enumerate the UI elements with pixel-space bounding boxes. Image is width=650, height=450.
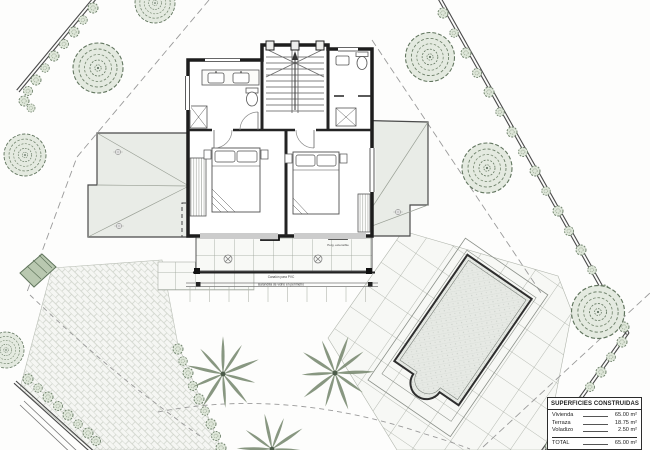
gutter-label: Canalón para PVC xyxy=(268,275,295,279)
leader-line xyxy=(583,444,608,445)
tree-icon xyxy=(572,286,625,339)
toilet xyxy=(357,57,367,70)
row-value: 2.50 m² xyxy=(611,427,637,435)
tree-icon xyxy=(4,134,46,176)
table-divider xyxy=(552,437,637,438)
nightstand xyxy=(285,154,292,163)
leader-line xyxy=(583,416,608,417)
sink xyxy=(233,73,249,83)
pillow xyxy=(237,151,257,162)
wardrobe xyxy=(190,158,206,216)
pillow xyxy=(317,155,336,166)
palm-tree-icon xyxy=(231,407,313,450)
tree-icon xyxy=(73,43,123,93)
total-value: 65.00 m² xyxy=(611,440,637,448)
pillow xyxy=(215,151,235,162)
row-label: Terraza xyxy=(552,420,580,428)
leader-line xyxy=(583,431,608,432)
nightstand xyxy=(204,150,211,159)
row-label: Voladizo xyxy=(552,427,580,435)
pillow xyxy=(296,155,315,166)
wardrobe xyxy=(358,194,370,232)
table-row: Voladizo 2.50 m² xyxy=(552,427,637,435)
table-row: Terraza 18.75 m² xyxy=(552,420,637,428)
surfaces-table: SUPERFICIES CONSTRUIDAS Vivienda 65.00 m… xyxy=(547,397,642,450)
row-label: Vivienda xyxy=(552,412,580,420)
surfaces-table-rows: Vivienda 65.00 m² Terraza 18.75 m² Volad… xyxy=(548,410,641,448)
nightstand xyxy=(261,150,268,159)
railing-label: Barandilla de vidrio en perímetro xyxy=(258,283,304,287)
tree-icon xyxy=(0,332,24,368)
bed-left xyxy=(204,148,268,212)
nightstand xyxy=(340,154,347,163)
surfaces-table-title: SUPERFICIES CONSTRUIDAS xyxy=(548,398,641,410)
table-row: Vivienda 65.00 m² xyxy=(552,412,637,420)
left-wing-roof xyxy=(88,128,195,237)
table-total-row: TOTAL 65.00 m² xyxy=(552,440,637,448)
leader-line xyxy=(583,424,608,425)
row-value: 65.00 m² xyxy=(611,412,637,420)
tree-icon xyxy=(135,0,175,23)
sink xyxy=(336,56,349,65)
pergola-label: Perg. extensible xyxy=(327,243,349,247)
bed-right xyxy=(285,152,347,214)
site-plan-page: Canalón para PVC Barandilla de vidrio en… xyxy=(0,0,650,450)
sink xyxy=(208,73,224,83)
tree-icon xyxy=(462,143,512,193)
row-value: 18.75 m² xyxy=(611,420,637,428)
tree-icon xyxy=(406,33,455,82)
toilet xyxy=(247,92,258,106)
site-plan-drawing: Canalón para PVC Barandilla de vidrio en… xyxy=(0,0,650,450)
total-label: TOTAL xyxy=(552,440,580,448)
